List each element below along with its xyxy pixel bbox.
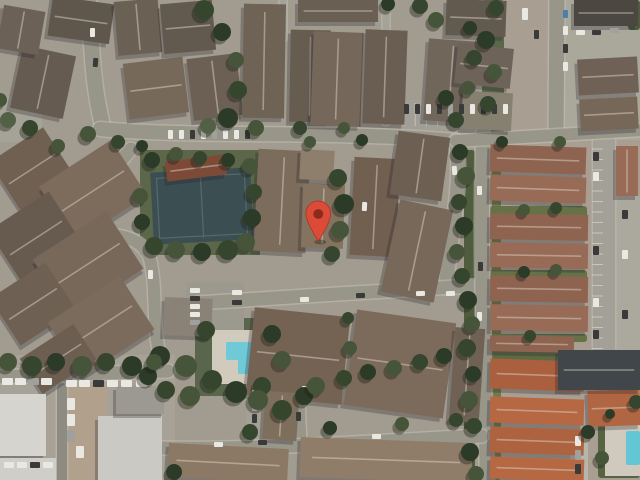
satellite-imagery bbox=[0, 0, 640, 480]
satellite-map-view[interactable] bbox=[0, 0, 640, 480]
